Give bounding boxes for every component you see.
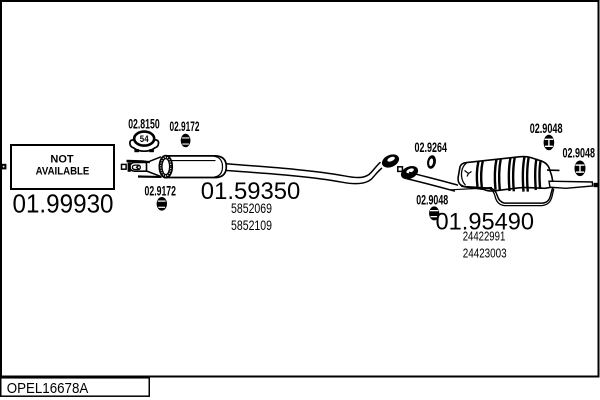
svg-text:24423003: 24423003	[463, 245, 507, 260]
svg-text:02.8150: 02.8150	[128, 116, 160, 132]
svg-text:02.9172: 02.9172	[145, 183, 177, 199]
svg-text:02.9264: 02.9264	[415, 139, 448, 155]
svg-text:02.9048: 02.9048	[530, 120, 563, 136]
svg-text:02.9172: 02.9172	[170, 118, 200, 134]
svg-text:AVAILABLE: AVAILABLE	[36, 166, 90, 178]
svg-text:5852109: 5852109	[231, 218, 272, 233]
svg-text:02.9048: 02.9048	[416, 192, 448, 208]
svg-text:54: 54	[140, 134, 149, 144]
svg-text:02.9048: 02.9048	[563, 145, 596, 161]
svg-text:5852069: 5852069	[231, 201, 272, 216]
svg-text:NOT: NOT	[50, 153, 74, 165]
svg-text:OPEL16678A: OPEL16678A	[7, 380, 89, 397]
svg-text:24422991: 24422991	[463, 228, 506, 243]
svg-text:01.99930: 01.99930	[13, 191, 114, 219]
